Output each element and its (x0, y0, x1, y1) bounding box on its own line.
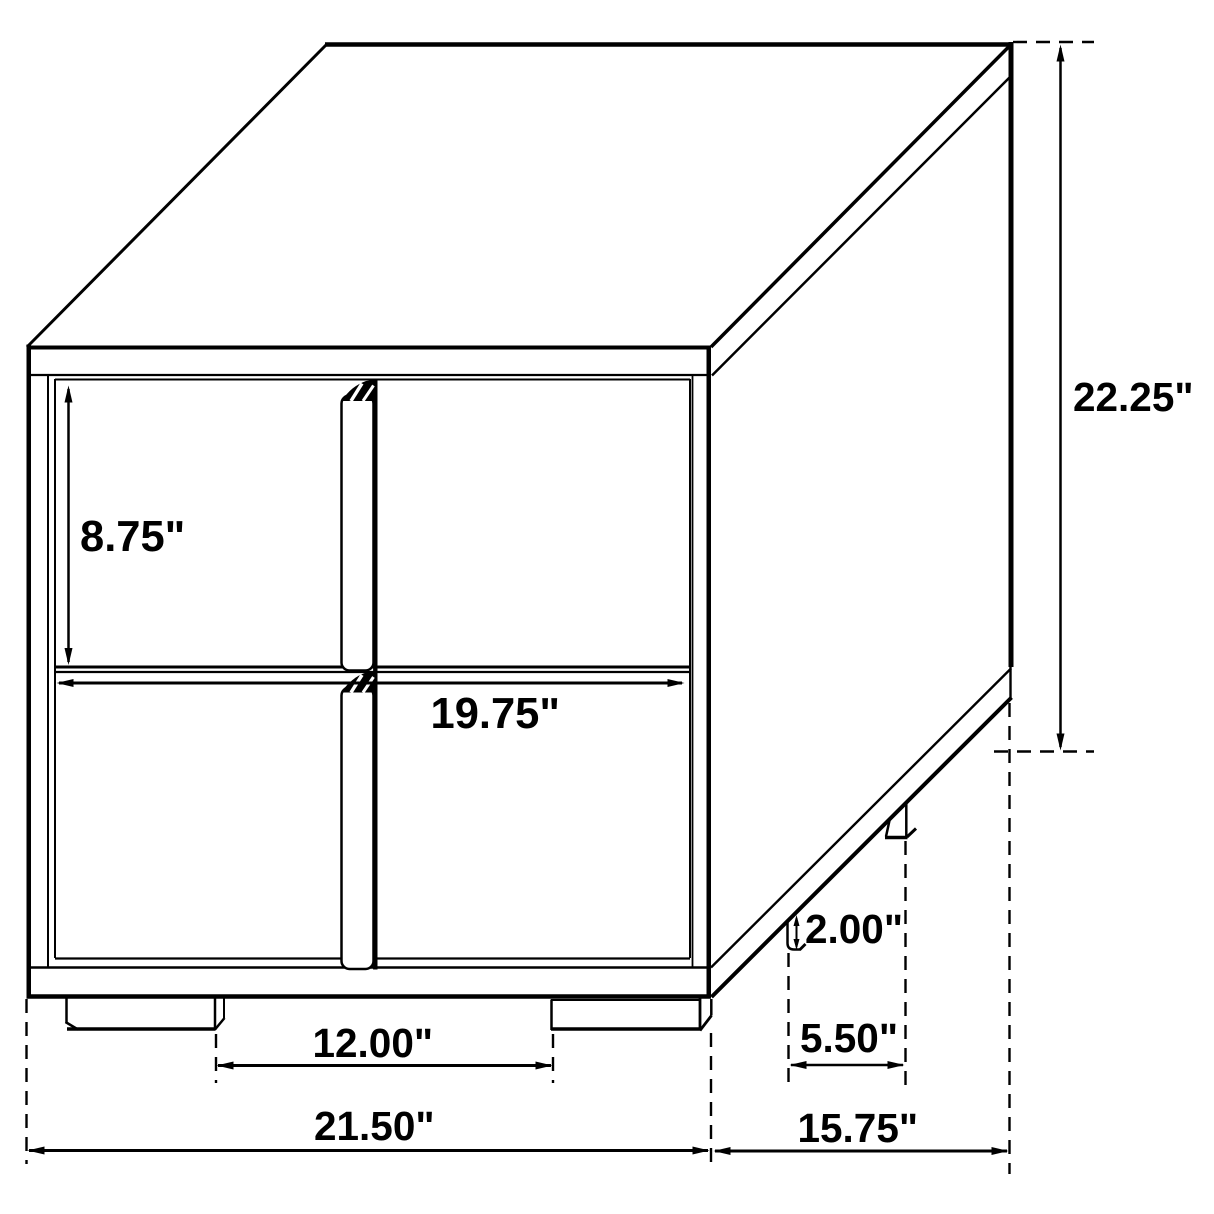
svg-text:21.50": 21.50" (314, 1103, 435, 1149)
svg-text:12.00": 12.00" (313, 1020, 434, 1066)
svg-text:5.50": 5.50" (800, 1015, 898, 1061)
svg-text:15.75": 15.75" (798, 1105, 919, 1151)
svg-text:22.25": 22.25" (1073, 374, 1194, 420)
svg-text:19.75": 19.75" (431, 690, 560, 738)
svg-text:8.75": 8.75" (80, 513, 185, 561)
svg-text:2.00": 2.00" (805, 906, 903, 952)
